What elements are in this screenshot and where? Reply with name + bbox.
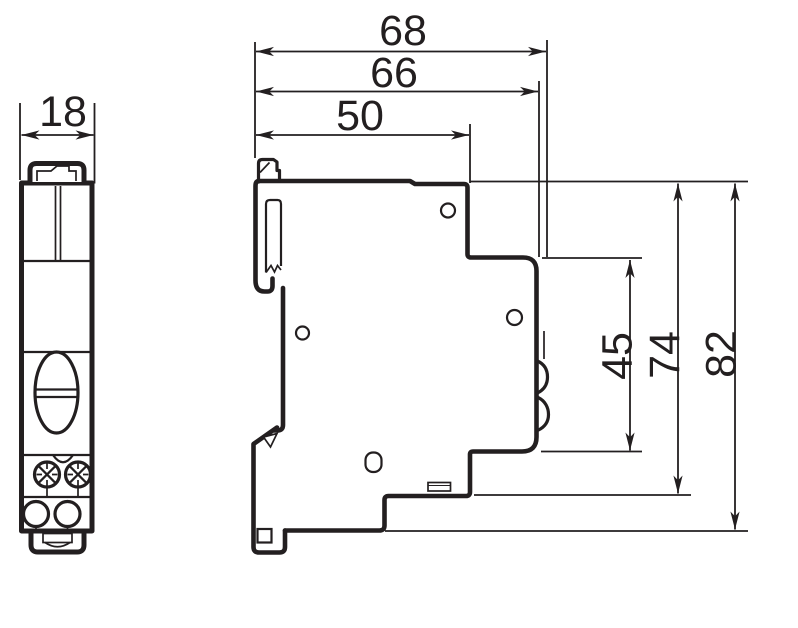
side-view bbox=[254, 160, 549, 553]
wire-hole-right bbox=[55, 502, 80, 527]
side-oval-opening bbox=[366, 453, 382, 473]
front-latch-lower bbox=[538, 398, 549, 431]
dim-label-18: 18 bbox=[39, 88, 87, 136]
side-outline bbox=[258, 181, 537, 531]
dim-68: 68 bbox=[256, 7, 546, 55]
side-hole-left bbox=[296, 327, 309, 340]
screw-terminal-right bbox=[66, 462, 91, 487]
side-top-tab-detail bbox=[260, 163, 270, 173]
side-upper-back-hook bbox=[256, 181, 273, 292]
rocker-switch bbox=[35, 352, 78, 433]
foot-notch-detail bbox=[258, 529, 272, 543]
dimensions: 68 66 50 18 45 74 82 bbox=[20, 7, 748, 531]
dim-50: 50 bbox=[256, 92, 469, 140]
dim-label-74: 74 bbox=[641, 331, 689, 379]
dim-66: 66 bbox=[256, 49, 538, 97]
side-hole-top bbox=[441, 204, 455, 218]
front-bottom-clip-detail bbox=[43, 534, 72, 543]
front-latch-upper bbox=[538, 361, 548, 393]
din-rail-guide-notch bbox=[266, 266, 281, 273]
dim-18: 18 bbox=[22, 88, 94, 136]
screw-terminal-left bbox=[35, 462, 60, 487]
slot-outline bbox=[428, 483, 451, 492]
dim-label-50: 50 bbox=[336, 92, 384, 140]
wire-hole-left bbox=[24, 502, 49, 527]
technical-drawing: 68 66 50 18 45 74 82 bbox=[0, 0, 798, 628]
din-rail-guide bbox=[266, 200, 281, 273]
dim-label-82: 82 bbox=[698, 330, 746, 378]
dim-82: 82 bbox=[698, 184, 746, 530]
dim-74: 74 bbox=[641, 184, 689, 494]
dim-label-66: 66 bbox=[370, 49, 418, 97]
dim-label-45: 45 bbox=[594, 332, 642, 380]
side-bottom-slot bbox=[428, 483, 451, 492]
dim-45: 45 bbox=[594, 260, 642, 451]
front-view bbox=[22, 164, 93, 553]
side-hole-front bbox=[507, 310, 522, 325]
side-back-wall bbox=[275, 288, 284, 431]
drawing-canvas: 68 66 50 18 45 74 82 bbox=[0, 0, 798, 628]
dim-label-68: 68 bbox=[379, 7, 427, 55]
